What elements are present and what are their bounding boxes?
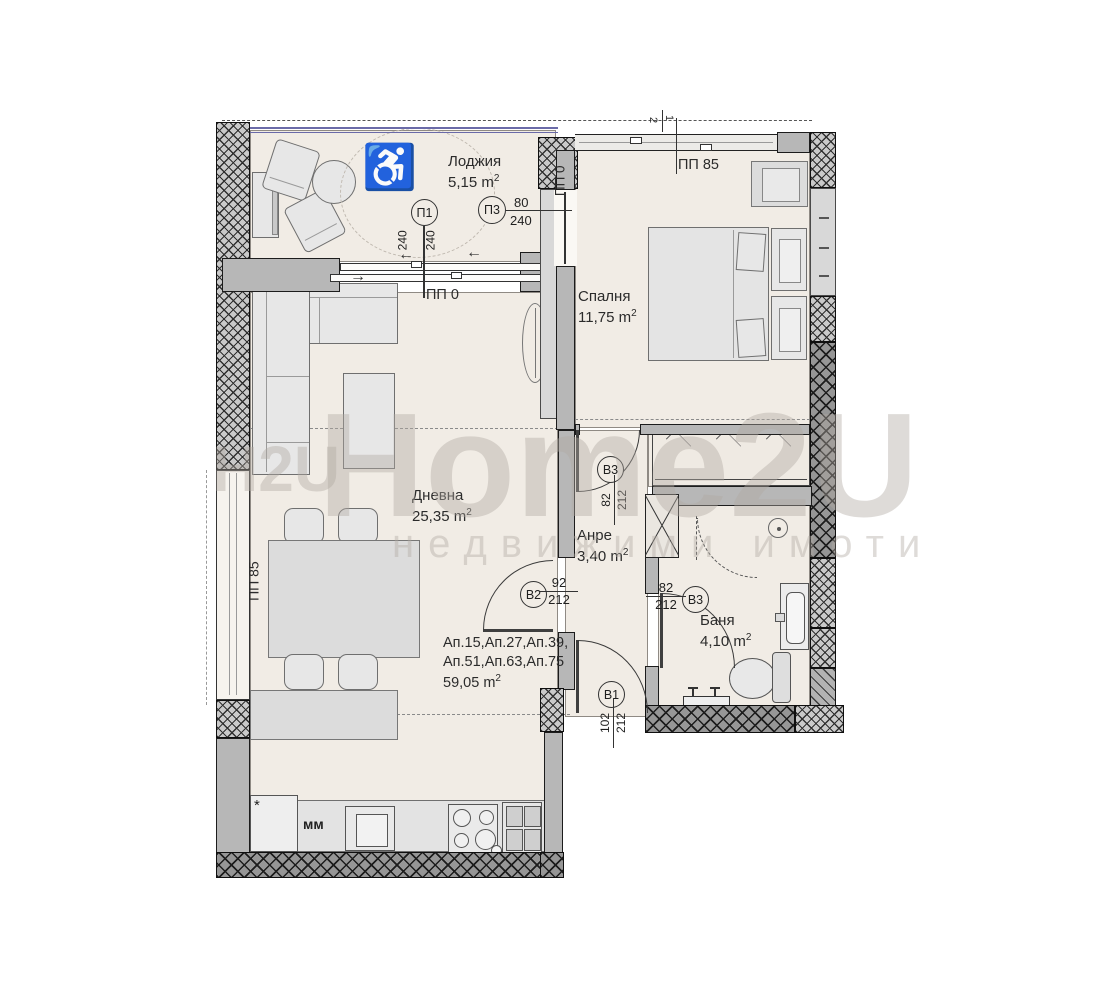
kitchen-east-wall bbox=[544, 732, 563, 854]
wheelchair-icon: ♿ bbox=[362, 146, 417, 190]
apartment-line1: Ап.15,Ап.27,Ап.39, bbox=[443, 634, 568, 653]
bedroom-label: Спалня 11,75 m2 bbox=[578, 287, 637, 327]
window-tick bbox=[819, 275, 829, 277]
pillow bbox=[736, 318, 767, 358]
bedroom-south-wall bbox=[640, 424, 810, 435]
sink-bowl bbox=[506, 806, 523, 827]
radiator-leg bbox=[692, 688, 694, 697]
sliding-door-handle bbox=[451, 272, 462, 279]
burner bbox=[479, 810, 494, 825]
bottom-exterior-wall bbox=[216, 852, 562, 878]
burner bbox=[453, 809, 471, 827]
toilet-bowl bbox=[729, 658, 776, 699]
hall-west-wall bbox=[558, 430, 575, 558]
washbasin bbox=[780, 583, 809, 650]
sliding-door-panel-upper bbox=[340, 263, 558, 271]
ceiling-break-line-bedroom bbox=[575, 419, 810, 420]
wall-block bbox=[540, 688, 564, 732]
door-marker-b3-bath: В3 bbox=[682, 586, 709, 613]
b2-dim: 92 212 bbox=[540, 574, 578, 608]
top-dim-mark: 2 bbox=[647, 117, 659, 123]
kitchen-mm-label: мм bbox=[303, 816, 324, 832]
double-sink bbox=[502, 802, 542, 853]
slide-direction-arrow: ← bbox=[466, 244, 482, 262]
wardrobe-front-line bbox=[655, 479, 807, 480]
left-exterior-wall-upper bbox=[216, 122, 250, 470]
right-wall-segment bbox=[810, 132, 836, 188]
marker-p3-leader bbox=[506, 210, 572, 211]
sofa-seam bbox=[267, 442, 309, 443]
right-wall-segment bbox=[810, 558, 836, 628]
dining-chair bbox=[338, 508, 378, 544]
balcony-door-opening-p3 bbox=[554, 190, 577, 266]
b1-width: 102 bbox=[599, 713, 612, 733]
loggia-area: 5,15 m2 bbox=[448, 172, 501, 193]
bathroom-south-wall bbox=[645, 705, 795, 733]
door-marker-p3: П3 bbox=[478, 196, 506, 224]
bedroom-name: Спалня bbox=[578, 287, 637, 307]
toilet-tank bbox=[772, 652, 791, 703]
bed-fold-line bbox=[733, 230, 734, 358]
dim-240: 240 bbox=[397, 230, 410, 250]
nightstand-top bbox=[779, 239, 801, 283]
window-glass-line bbox=[236, 473, 237, 695]
apartment-label: Ап.15,Ап.27,Ап.39, Ап.51,Ап.63,Ап.75 59,… bbox=[443, 634, 568, 692]
plant-stem bbox=[535, 308, 536, 378]
window-handle bbox=[700, 144, 712, 151]
pp0-wall-label: ПП 0 bbox=[552, 165, 570, 196]
roof-overhang-dashed-line bbox=[222, 120, 812, 122]
left-exterior-wall-mid bbox=[216, 700, 250, 738]
right-wall-segment bbox=[810, 628, 836, 668]
window-handle bbox=[630, 137, 642, 144]
floor-plan-canvas: ← ← → bbox=[0, 0, 1099, 1000]
chair-seam bbox=[305, 223, 337, 241]
bath-area: 4,10 m2 bbox=[700, 631, 751, 652]
coffee-table bbox=[343, 373, 395, 469]
fridge: * bbox=[250, 795, 298, 852]
kitchen-island bbox=[250, 690, 398, 740]
stove bbox=[448, 804, 498, 853]
bath-name: Баня bbox=[700, 611, 751, 631]
bath-label: Баня 4,10 m2 bbox=[700, 611, 751, 651]
bedroom-west-wall-lower bbox=[556, 266, 575, 430]
p3-width: 80 bbox=[514, 196, 528, 210]
bedroom-top-corner-block bbox=[777, 132, 810, 153]
b3-bath-height: 212 bbox=[655, 598, 677, 612]
radiator-leg-cap bbox=[688, 687, 698, 689]
apartment-line2: Ап.51,Ап.63,Ап.75 bbox=[443, 653, 568, 672]
nightstand bbox=[771, 228, 807, 291]
b3-bedroom-height: 212 bbox=[616, 490, 629, 510]
sink-basin bbox=[356, 814, 388, 847]
living-area: 25,35 m2 bbox=[412, 506, 472, 527]
door-leaf-line bbox=[564, 192, 566, 264]
dining-table bbox=[268, 540, 420, 658]
chair-seam bbox=[269, 177, 304, 189]
nightstand-top bbox=[779, 308, 801, 352]
loggia-railing bbox=[248, 127, 558, 133]
b3-bath-width: 82 bbox=[659, 581, 673, 595]
b1-height: 212 bbox=[615, 713, 628, 733]
slide-direction-arrow: → bbox=[350, 268, 366, 286]
left-facade-axis-line bbox=[206, 470, 207, 705]
living-label: Дневна 25,35 m2 bbox=[412, 486, 472, 526]
top-dim-mark: 1 bbox=[663, 115, 675, 121]
sofa-seam bbox=[267, 376, 309, 377]
sink-bowl bbox=[524, 829, 541, 851]
b2-height: 212 bbox=[548, 593, 570, 607]
door-marker-p1: П1 bbox=[411, 199, 438, 226]
drain-dot bbox=[777, 527, 781, 531]
b1-dim: 102 212 bbox=[596, 698, 628, 748]
sofa-left-section bbox=[252, 283, 310, 475]
b3-bedroom-width: 82 bbox=[600, 493, 613, 506]
pp85-left-label: ПП 85 bbox=[245, 561, 263, 601]
b2-width: 92 bbox=[552, 576, 566, 590]
nightstand bbox=[771, 296, 807, 360]
bedroom-area: 11,75 m2 bbox=[578, 307, 637, 328]
window-tick bbox=[819, 247, 829, 249]
sofa-seam bbox=[319, 298, 320, 343]
pillow bbox=[736, 232, 767, 272]
sink-bowl bbox=[524, 806, 541, 827]
b3-bedroom-dim: 82 212 bbox=[597, 475, 627, 525]
dining-chair bbox=[284, 654, 324, 690]
wall-corner-block bbox=[540, 852, 564, 878]
shower-drain-icon bbox=[768, 518, 788, 538]
right-wall-window-panel bbox=[810, 188, 836, 296]
window-tick bbox=[819, 217, 829, 219]
fridge-freezer-mark: * bbox=[254, 797, 260, 814]
hall-label: Анре 3,40 m2 bbox=[577, 526, 628, 566]
loggia-name: Лоджия bbox=[448, 152, 501, 172]
apartment-area: 59,05 m2 bbox=[443, 672, 568, 693]
dim-240: 240 bbox=[425, 230, 438, 250]
installation-shaft bbox=[645, 494, 679, 558]
pp0-door-label: ПП 0 bbox=[426, 286, 459, 305]
right-wall-segment bbox=[810, 342, 836, 558]
dresser-detail bbox=[762, 168, 800, 202]
dining-chair bbox=[284, 508, 324, 544]
radiator-leg-cap bbox=[710, 687, 720, 689]
basin-bowl bbox=[786, 592, 805, 644]
hall-area: 3,40 m2 bbox=[577, 546, 628, 567]
bedroom-dresser bbox=[751, 161, 808, 207]
right-wall-segment bbox=[810, 668, 836, 708]
window-glass-line bbox=[229, 473, 230, 695]
right-wall-segment bbox=[810, 296, 836, 342]
built-in-wardrobe bbox=[652, 434, 810, 486]
b3-bath-dim: 82 212 bbox=[646, 579, 686, 613]
kitchen-sink bbox=[345, 806, 395, 851]
burner bbox=[454, 833, 469, 848]
hall-name: Анре bbox=[577, 526, 628, 546]
bathroom-south-corner bbox=[795, 705, 844, 733]
living-name: Дневна bbox=[412, 486, 472, 506]
dining-chair bbox=[338, 654, 378, 690]
loggia-label: Лоджия 5,15 m2 bbox=[448, 152, 501, 192]
radiator-leg bbox=[714, 688, 716, 697]
pp85-window-label: ПП 85 bbox=[678, 156, 719, 175]
basin-tap bbox=[775, 613, 785, 622]
sink-bowl bbox=[506, 829, 523, 851]
sofa-seam bbox=[266, 288, 267, 472]
loggia-divider-wall bbox=[222, 258, 340, 292]
pp85-leader-line bbox=[676, 118, 677, 174]
p3-height: 240 bbox=[510, 214, 532, 228]
left-exterior-wall-lower bbox=[216, 738, 250, 854]
